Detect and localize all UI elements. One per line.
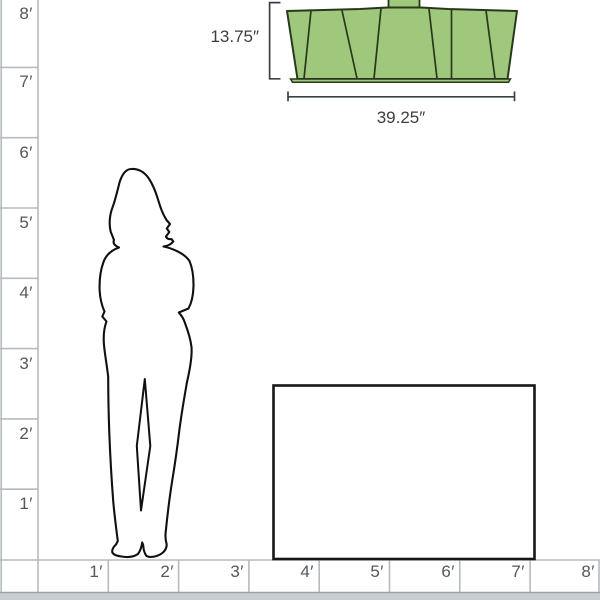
hruler-label-8ft: 8′	[535, 562, 595, 581]
person-silhouette	[100, 169, 194, 557]
hruler-label-7ft: 7′	[465, 562, 525, 581]
vruler-label-8ft: 8′	[0, 4, 33, 23]
vruler-label-7ft: 7′	[0, 72, 33, 91]
vruler-label-3ft: 3′	[0, 354, 33, 373]
width-dimension-line	[288, 92, 515, 102]
fixture-bottom-rim	[291, 79, 511, 82]
vruler-label-6ft: 6′	[0, 143, 33, 162]
fixture-canopy	[389, 0, 420, 8]
height-dimension-bracket	[270, 3, 281, 79]
vruler-label-4ft: 4′	[0, 283, 33, 302]
fixture-body	[287, 8, 517, 80]
vruler-label-5ft: 5′	[0, 213, 33, 232]
hruler-label-5ft: 5′	[324, 562, 384, 581]
ground-strip	[0, 593, 600, 600]
hruler-label-1ft: 1′	[43, 562, 103, 581]
fixture-width-label: 39.25″	[351, 108, 451, 127]
fixture-height-label: 13.75″	[179, 27, 259, 46]
woman-outline	[100, 169, 194, 557]
table-outline	[274, 386, 535, 560]
diagram-canvas	[0, 0, 600, 600]
hruler-label-3ft: 3′	[184, 562, 244, 581]
ceiling-light-fixture	[287, 0, 517, 82]
vruler-label-1ft: 1′	[0, 494, 33, 513]
hruler-label-2ft: 2′	[114, 562, 174, 581]
hruler-label-6ft: 6′	[395, 562, 455, 581]
hruler-label-4ft: 4′	[254, 562, 314, 581]
vruler-label-2ft: 2′	[0, 424, 33, 443]
scale-diagram: 8′ 7′ 6′ 5′ 4′ 3′ 2′ 1′ 1′ 2′ 3′ 4′ 5′ 6…	[0, 0, 600, 600]
